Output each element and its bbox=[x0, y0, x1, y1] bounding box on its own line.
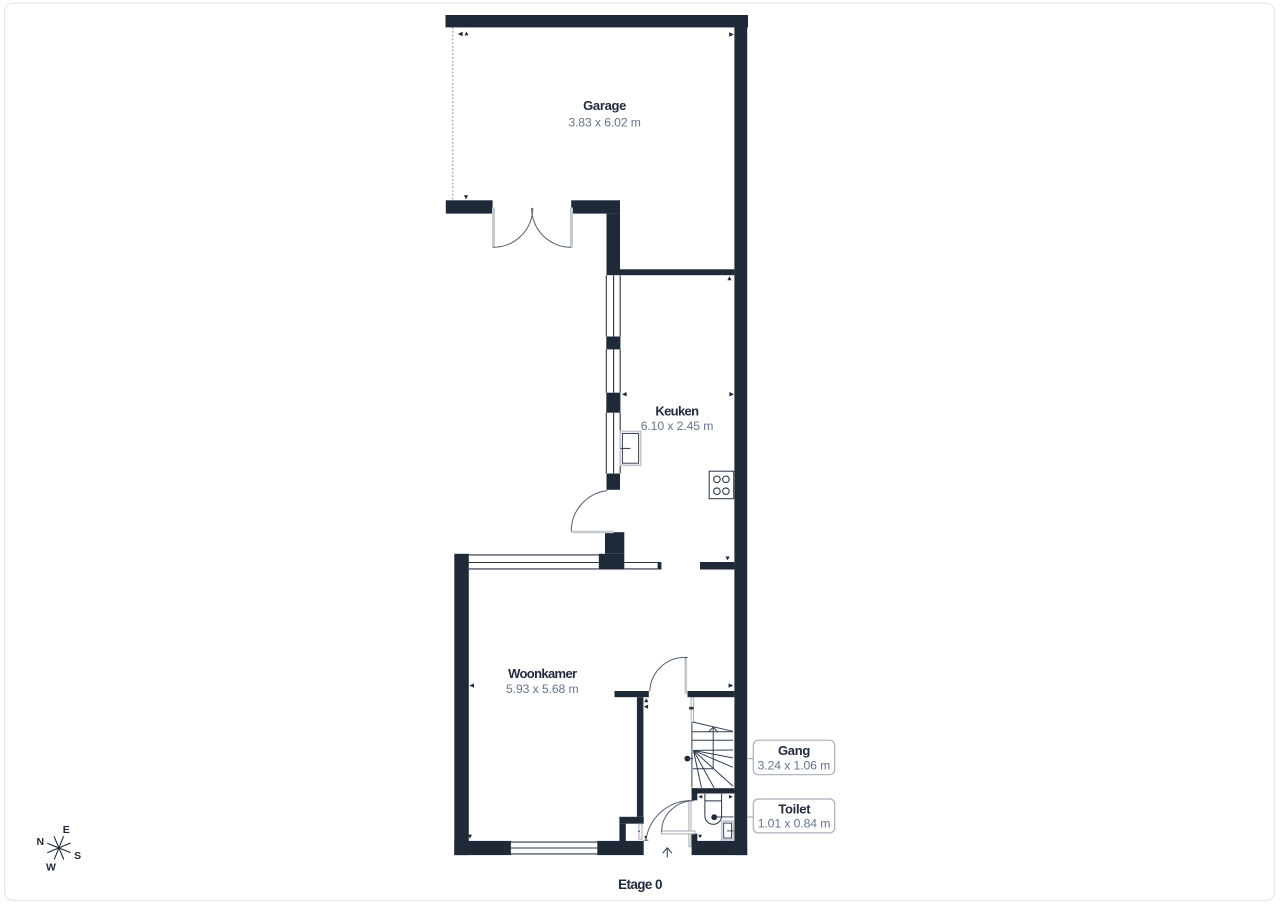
svg-text:Etage 0: Etage 0 bbox=[618, 877, 662, 892]
svg-text:1.01 x 0.84 m: 1.01 x 0.84 m bbox=[758, 817, 831, 831]
svg-text:5.93 x 5.68 m: 5.93 x 5.68 m bbox=[506, 682, 579, 696]
svg-text:Gang: Gang bbox=[778, 743, 810, 758]
svg-text:Toilet: Toilet bbox=[778, 801, 811, 816]
svg-text:E: E bbox=[63, 824, 70, 836]
svg-text:Keuken: Keuken bbox=[655, 403, 699, 418]
svg-text:N: N bbox=[37, 836, 45, 848]
svg-text:Woonkamer: Woonkamer bbox=[508, 666, 577, 681]
svg-text:W: W bbox=[46, 862, 56, 874]
svg-text:Garage: Garage bbox=[583, 98, 626, 113]
svg-text:3.24 x 1.06 m: 3.24 x 1.06 m bbox=[758, 759, 831, 773]
svg-text:3.83 x 6.02 m: 3.83 x 6.02 m bbox=[568, 116, 641, 130]
svg-text:6.10 x 2.45 m: 6.10 x 2.45 m bbox=[641, 419, 714, 433]
svg-text:S: S bbox=[74, 850, 81, 862]
